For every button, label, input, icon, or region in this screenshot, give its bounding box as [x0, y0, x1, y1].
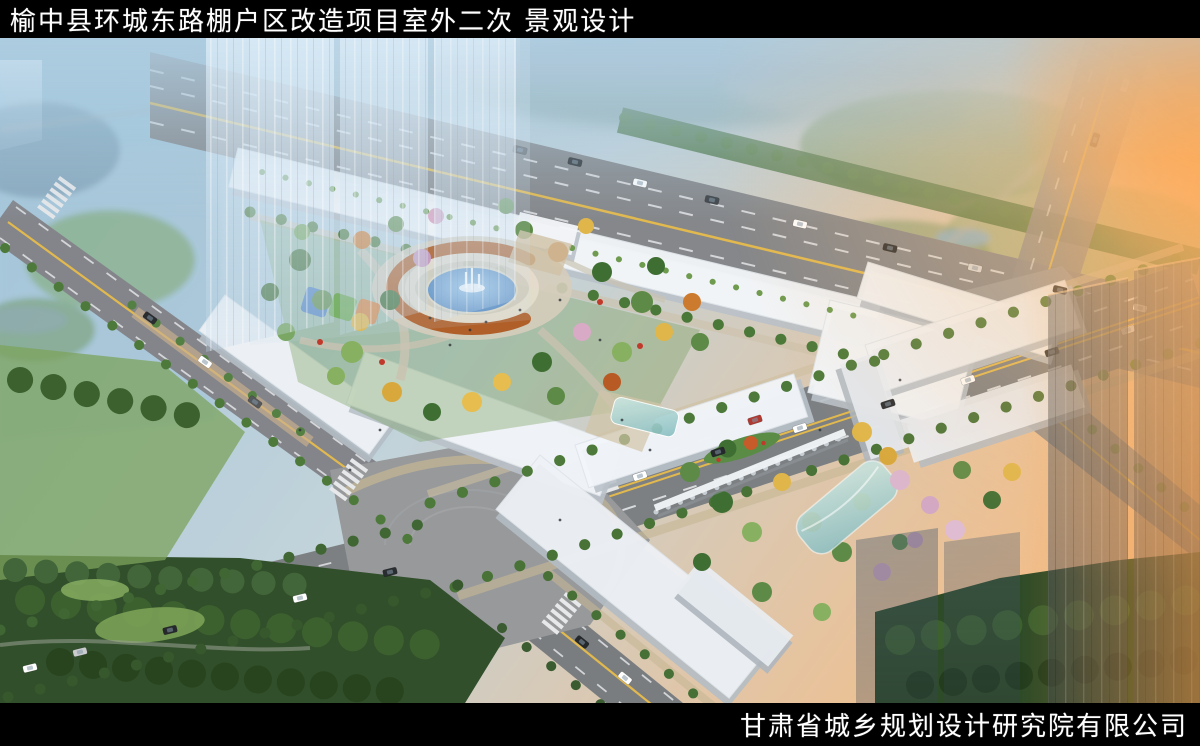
presentation-board: 榆中县环城东路棚户区改造项目室外二次 景观设计 甘肃省城乡规划设计研究院有限公司	[0, 0, 1200, 746]
title-bar: 榆中县环城东路棚户区改造项目室外二次 景观设计	[0, 0, 1200, 38]
credit-bar: 甘肃省城乡规划设计研究院有限公司	[0, 703, 1200, 746]
project-title: 榆中县环城东路棚户区改造项目室外二次 景观设计	[10, 1, 636, 38]
rendering-image	[0, 0, 1200, 746]
company-name: 甘肃省城乡规划设计研究院有限公司	[740, 706, 1188, 743]
